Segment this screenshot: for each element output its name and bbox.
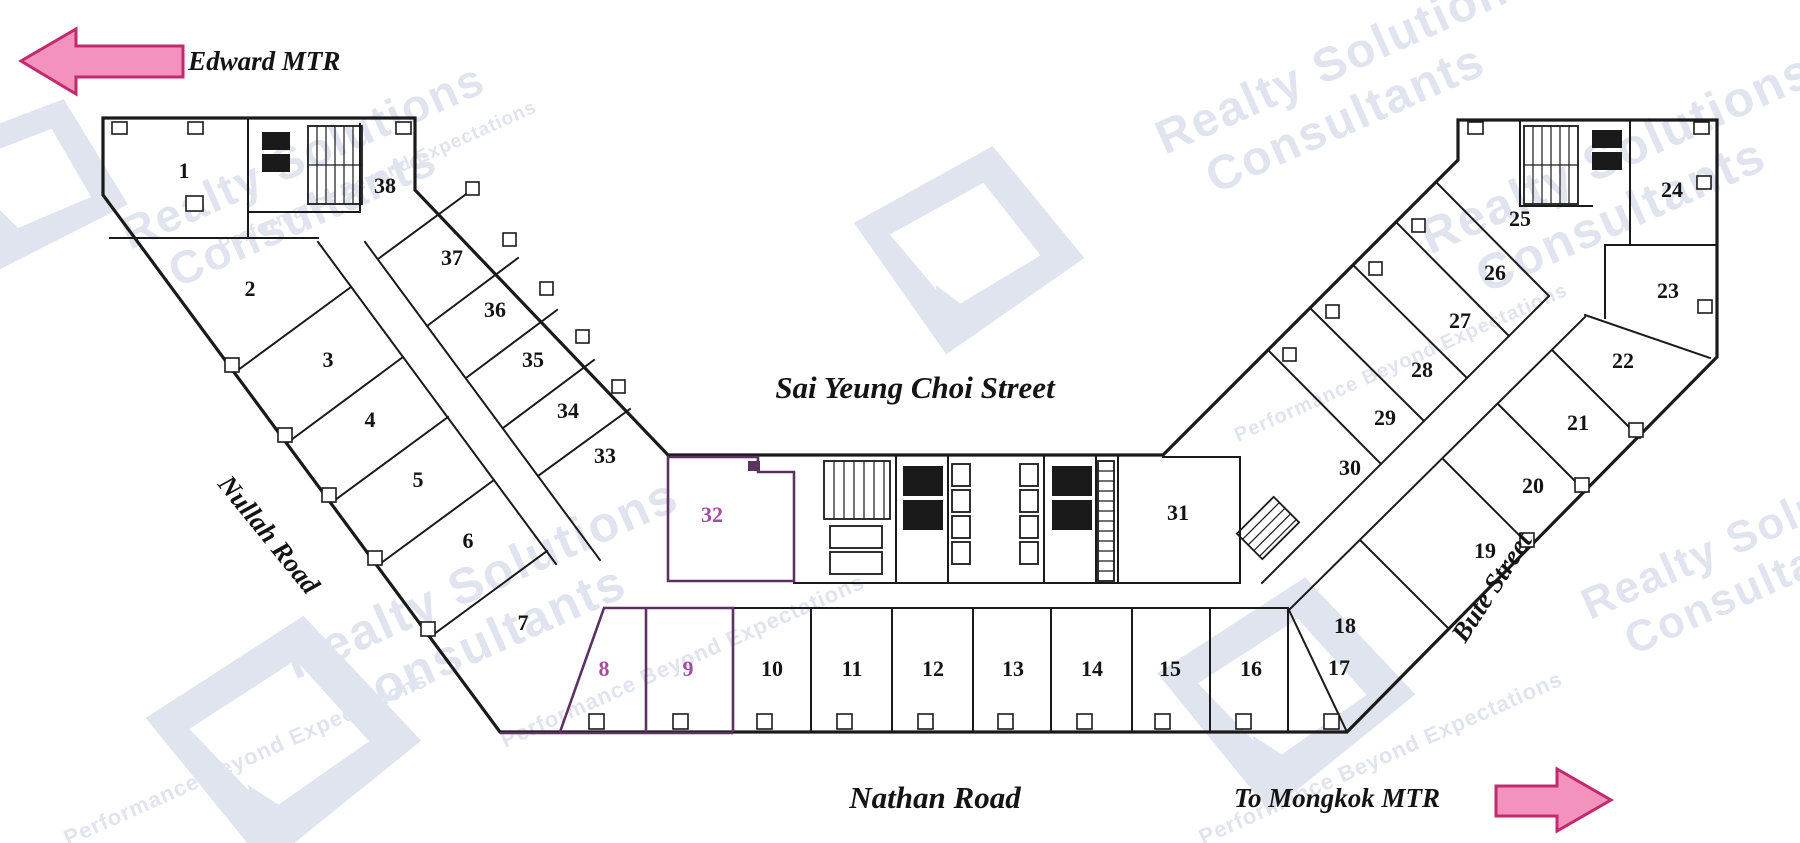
company-logo-icon	[828, 118, 1105, 381]
unit-label-4: 4	[365, 407, 376, 432]
unit-label-20: 20	[1522, 473, 1544, 498]
unit-label-18: 18	[1334, 613, 1356, 638]
unit-label-32: 32	[701, 502, 723, 527]
unit-label-31: 31	[1167, 500, 1189, 525]
watermark-text: Realty Solutions Consultants	[113, 52, 515, 308]
unit-label-33: 33	[594, 443, 616, 468]
unit-label-9: 9	[683, 656, 694, 681]
unit-label-24: 24	[1661, 177, 1683, 202]
unit-label-21: 21	[1567, 410, 1589, 435]
direction-label-mongkok: To Mongkok MTR	[1234, 783, 1440, 813]
unit-label-16: 16	[1240, 656, 1262, 681]
unit-label-29: 29	[1374, 405, 1396, 430]
unit-label-28: 28	[1411, 357, 1433, 382]
company-logo-icon	[0, 62, 155, 305]
unit-label-36: 36	[484, 297, 506, 322]
unit-label-6: 6	[463, 528, 474, 553]
street-label-nathan-road: Nathan Road	[848, 780, 1021, 815]
unit-label-8: 8	[599, 656, 610, 681]
unit-label-22: 22	[1612, 348, 1634, 373]
unit-label-10: 10	[761, 656, 783, 681]
unit-label-34: 34	[557, 398, 579, 423]
unit-label-30: 30	[1339, 455, 1361, 480]
street-label-sai-yeung-choi: Sai Yeung Choi Street	[775, 370, 1056, 405]
staircase-icon	[1237, 497, 1299, 559]
unit-label-37: 37	[441, 245, 463, 270]
unit-label-14: 14	[1081, 656, 1103, 681]
street-label-nullah-road: Nullah Road	[212, 468, 326, 599]
unit-label-27: 27	[1449, 308, 1471, 333]
unit-label-15: 15	[1159, 656, 1181, 681]
arrow-right-icon	[1496, 769, 1611, 831]
unit-label-26: 26	[1484, 260, 1506, 285]
unit-label-35: 35	[522, 347, 544, 372]
unit-label-7: 7	[518, 610, 529, 635]
unit-label-2: 2	[245, 276, 256, 301]
unit-label-23: 23	[1657, 278, 1679, 303]
unit-label-1: 1	[179, 158, 190, 183]
floor-plan-page: Realty Solutions Consultants Realty Solu…	[0, 0, 1800, 843]
floor-plan-svg: Realty Solutions Consultants Realty Solu…	[0, 0, 1800, 843]
unit-label-3: 3	[323, 347, 334, 372]
arrow-left-icon	[21, 29, 183, 94]
unit-label-5: 5	[413, 467, 424, 492]
staircase-icon	[824, 461, 890, 574]
unit-label-17: 17	[1328, 655, 1350, 680]
unit-label-11: 11	[842, 656, 863, 681]
unit-label-25: 25	[1509, 206, 1531, 231]
unit-label-38: 38	[374, 173, 396, 198]
unit-label-13: 13	[1002, 656, 1024, 681]
elevator-icon	[903, 466, 1092, 530]
unit-label-12: 12	[922, 656, 944, 681]
